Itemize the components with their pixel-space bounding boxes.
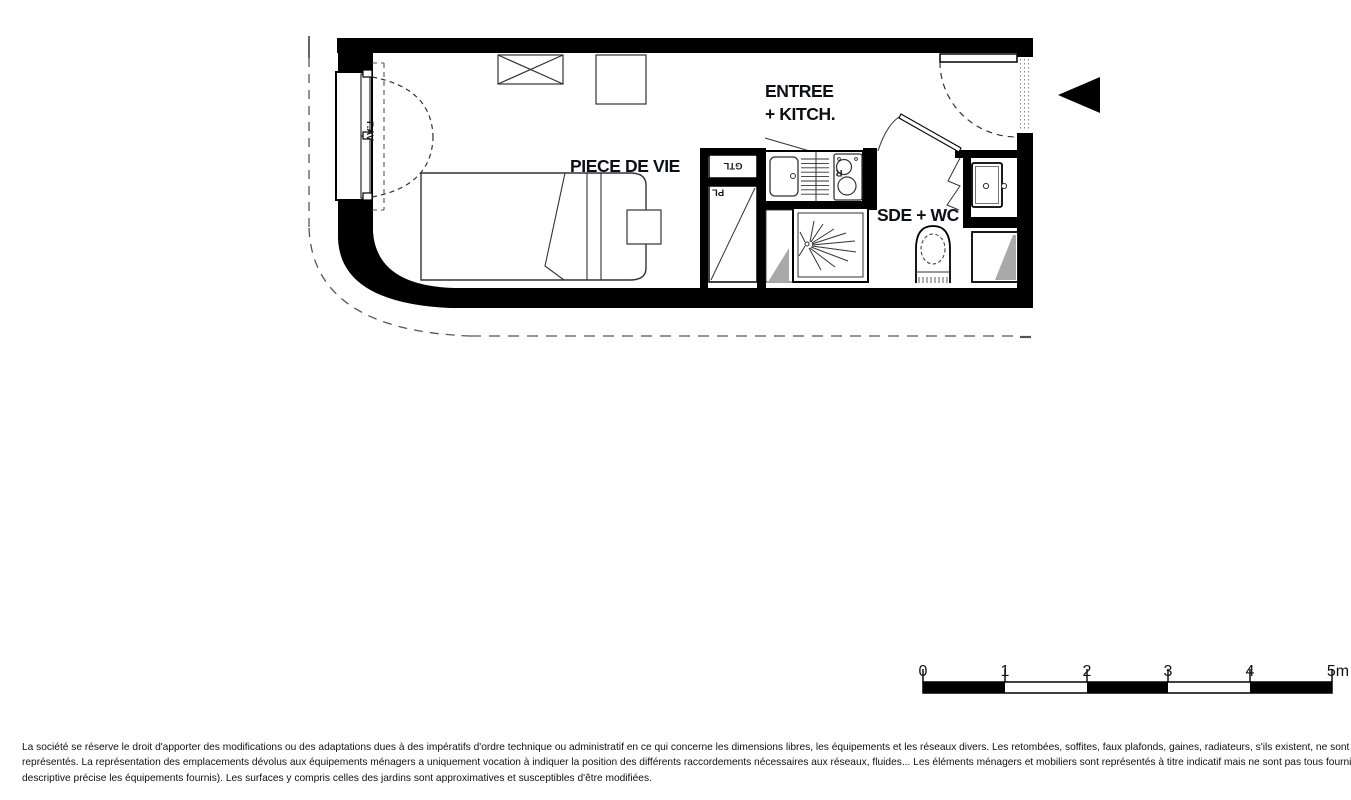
technical-duct-box: GTL	[709, 155, 757, 178]
bedside-table	[627, 210, 661, 244]
bathroom-door	[878, 114, 961, 210]
door-leaf	[940, 54, 1017, 62]
entry-kitchen-label-line1: ENTREE	[765, 81, 834, 101]
disclaimer-line-2: représentés. La représentation des empla…	[22, 755, 1342, 770]
closet-label: PL	[712, 187, 724, 198]
entrance-door	[940, 54, 1033, 137]
window-label: F.AV	[364, 121, 375, 142]
ceiling-hatch-box	[498, 55, 563, 84]
scale-label-5m: 5m	[1327, 663, 1349, 680]
shower-tray	[793, 208, 868, 282]
entrance-arrow-icon	[1058, 77, 1100, 113]
kitchen-counter: R	[765, 138, 863, 202]
washbasin	[972, 163, 1007, 207]
shaft-left	[766, 210, 793, 282]
scale-label-0: 0	[919, 663, 928, 680]
scale-label-1: 1	[1001, 663, 1010, 680]
square-table	[596, 55, 646, 104]
fridge-label: R	[835, 167, 842, 178]
disclaimer-line-1: La société se réserve le droit d'apporte…	[22, 740, 1342, 755]
floor-plan-page: F.AV GTL PL	[0, 0, 1351, 800]
door-swing-arc	[940, 62, 1017, 137]
legal-disclaimer: La société se réserve le droit d'apporte…	[22, 740, 1342, 786]
entry-kitchen-label-line2: + KITCH.	[765, 104, 835, 124]
floor-plan-canvas: F.AV GTL PL	[0, 0, 1351, 800]
folding-door	[947, 158, 960, 210]
scale-label-3: 3	[1164, 663, 1173, 680]
closet: PL	[709, 186, 757, 282]
scale-bar: 0 1 2 3 4 5m	[919, 663, 1350, 693]
scale-label-4: 4	[1246, 663, 1255, 680]
french-window: F.AV	[336, 63, 433, 210]
disclaimer-line-3: descriptive précise les équipements four…	[22, 771, 1342, 786]
toilet	[916, 226, 950, 283]
scale-label-2: 2	[1083, 663, 1092, 680]
shaft-right	[972, 232, 1018, 282]
kitchen-sink	[770, 157, 798, 196]
bed	[421, 173, 646, 280]
shower-wc-label: SDE + WC	[877, 205, 960, 225]
gtl-label: GTL	[723, 160, 742, 171]
living-room-label: PIECE DE VIE	[570, 156, 680, 176]
